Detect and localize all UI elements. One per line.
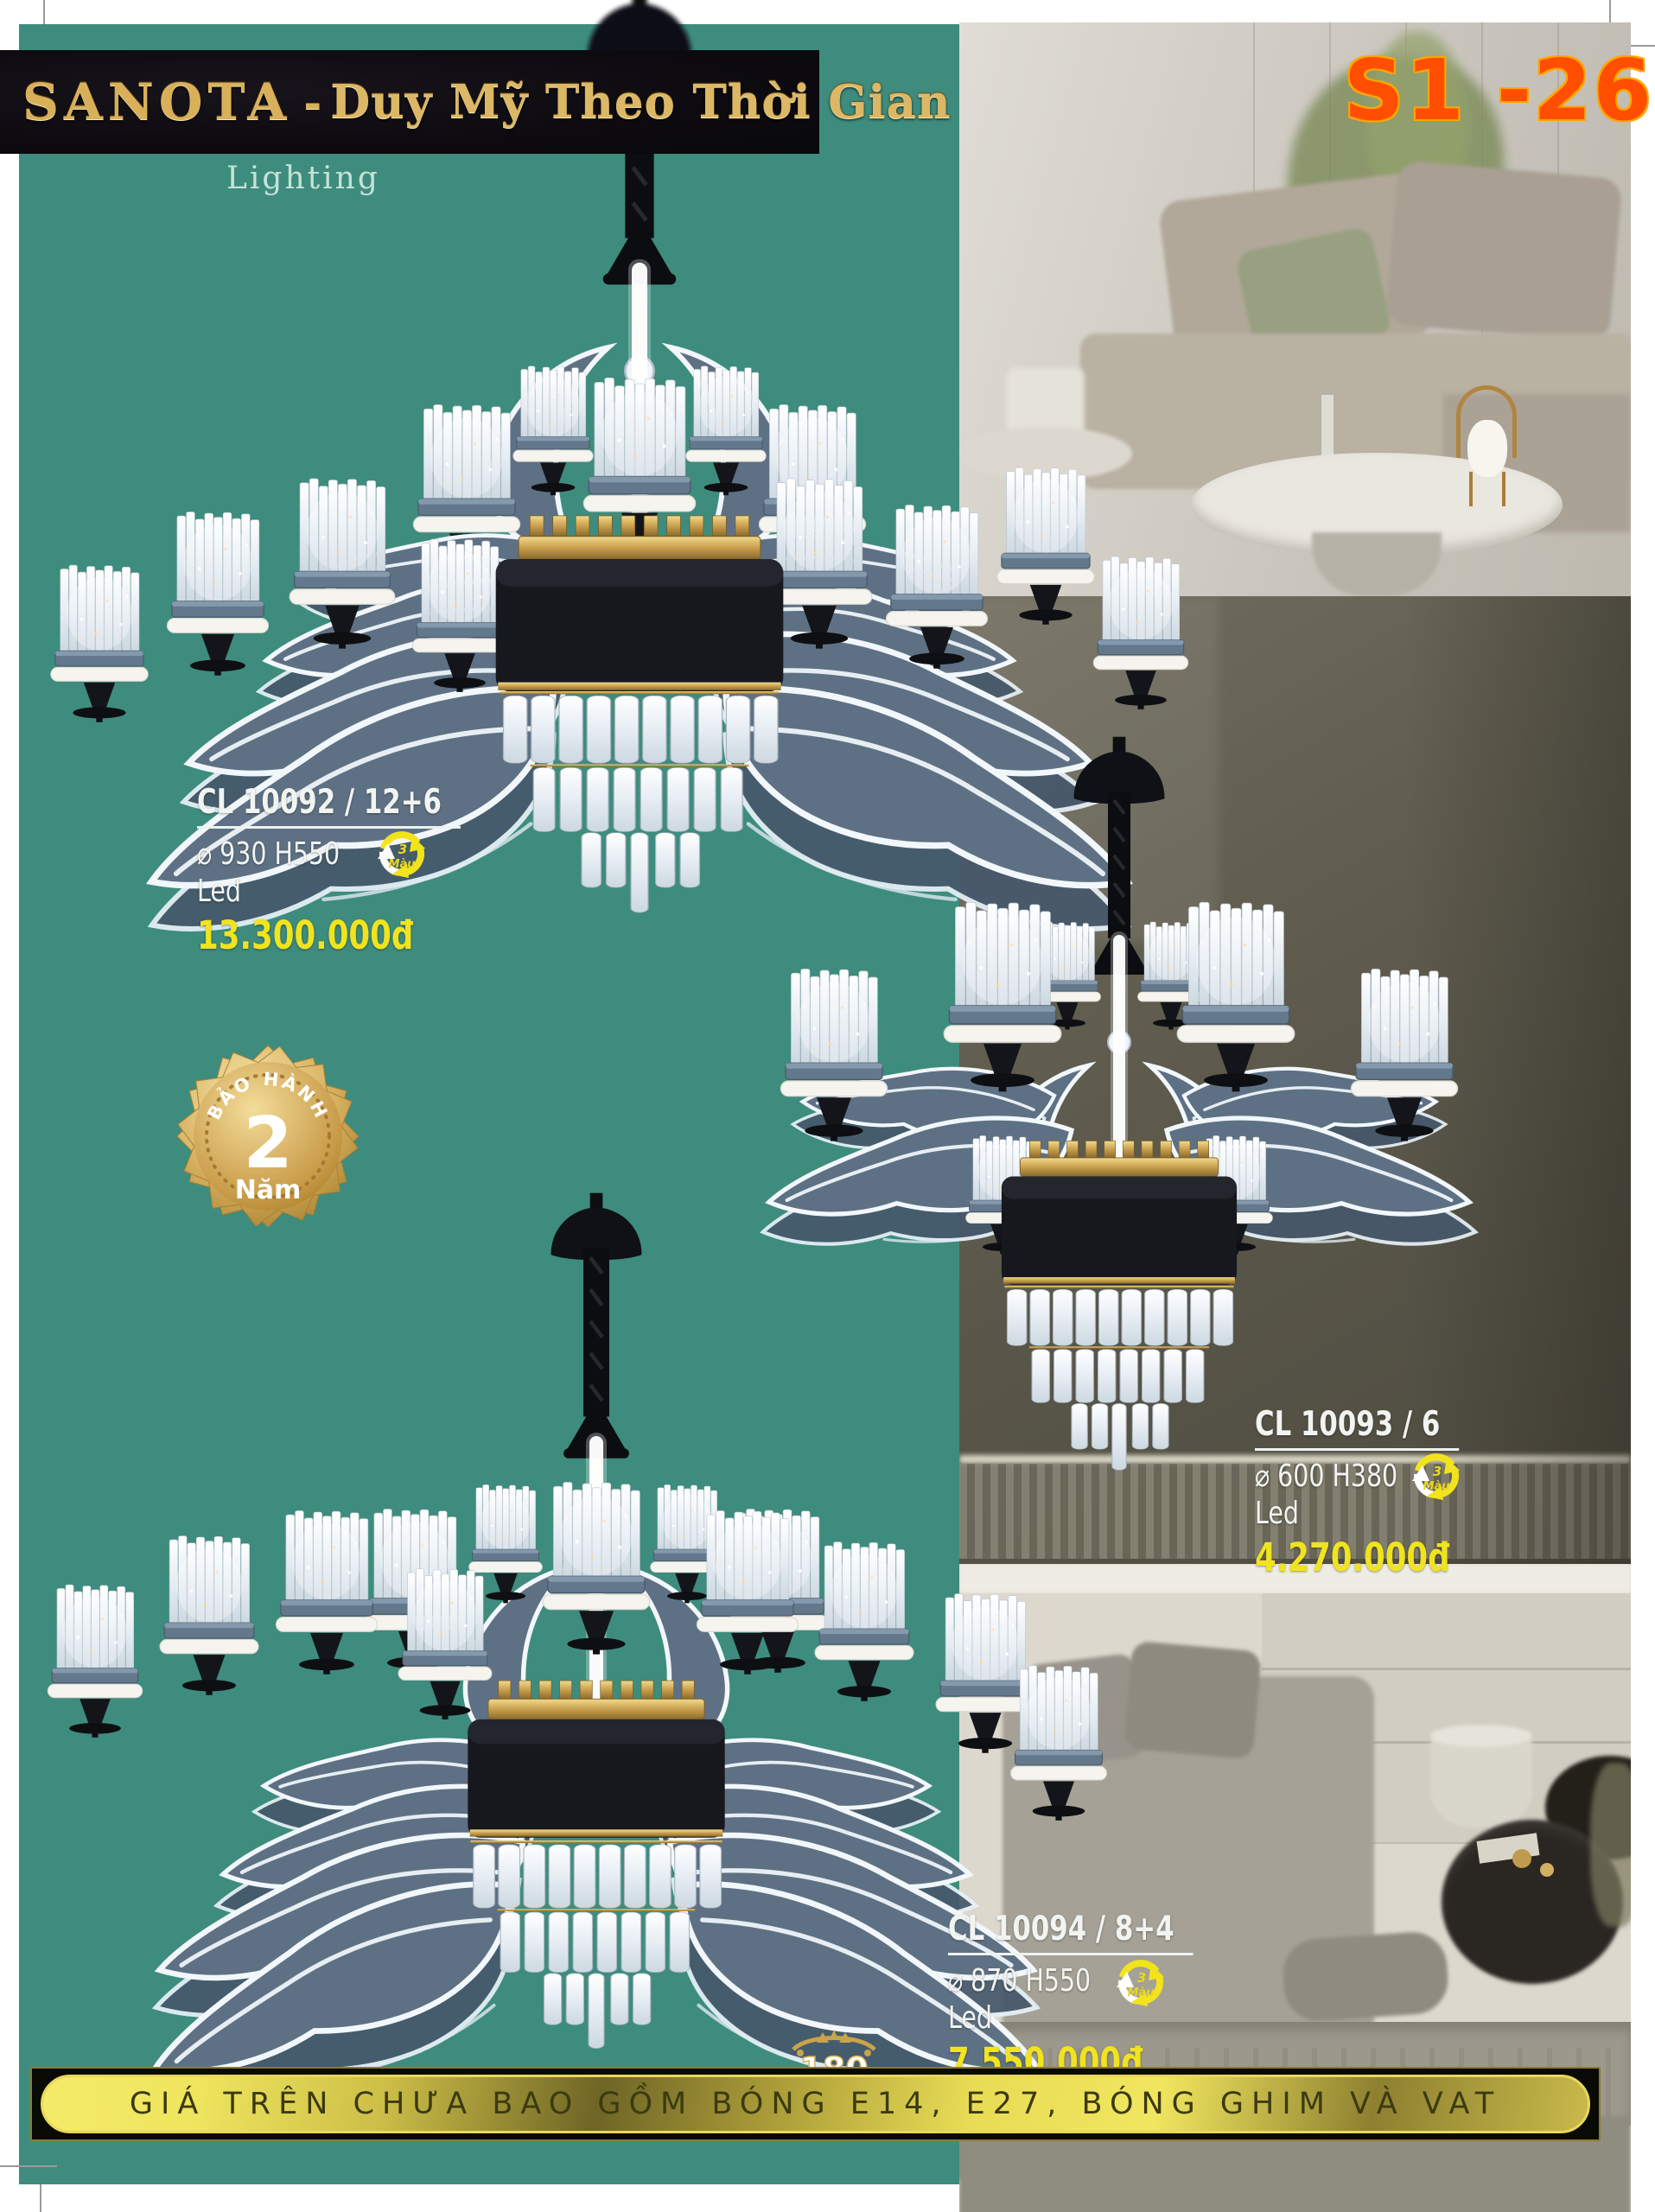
footer-banner-pill: GIÁ TRÊN CHƯA BAO GỒM BÓNG E14, E27, BÓN… — [41, 2075, 1590, 2133]
product-info-cl10092: CL 10092 / 12+6 ⌀ 930 H550 Led 13.300.00… — [197, 783, 531, 958]
table-lantern-shade — [1467, 420, 1507, 477]
brand-banner: SANOTA - Duy Mỹ Theo Thời Gian — [0, 50, 819, 154]
page-code: S1 -26 — [1290, 48, 1653, 132]
partial-medal-badge: 180 — [778, 2027, 890, 2067]
color-count-label: 3 — [1137, 1970, 1146, 1986]
product-info-cl10093: CL 10093 / 6 ⌀ 600 H380 Led 4.270.000đ — [1255, 1405, 1513, 1580]
product-code: CL 10092 / 12+6 — [197, 783, 461, 829]
scan-artifact-line — [1631, 45, 1655, 47]
sofa-cushion — [1384, 160, 1623, 343]
plant-image — [1590, 1763, 1631, 1927]
brand-sub-logo: Lighting — [226, 161, 380, 196]
product-info-cl10094: CL 10094 / 8+4 ⌀ 870 H550 Led 7.550.000đ — [948, 1910, 1258, 2085]
brand-separator: - — [303, 77, 321, 128]
brand-name: SANOTA — [22, 73, 291, 131]
badge-years-unit: Năm — [235, 1175, 302, 1205]
scan-artifact-line — [0, 2165, 57, 2167]
color-unit-label: Màu — [389, 858, 416, 871]
footer-banner: GIÁ TRÊN CHƯA BAO GỒM BÓNG E14, E27, BÓN… — [30, 2067, 1601, 2141]
product-price: 4.270.000đ — [1255, 1535, 1459, 1580]
color-unit-label: Màu — [1128, 1986, 1155, 1999]
scan-artifact-line — [43, 0, 45, 24]
product-price: 13.300.000đ — [197, 912, 461, 958]
product-code: CL 10094 / 8+4 — [948, 1910, 1194, 1955]
medal-number: 180 — [799, 2050, 868, 2067]
catalog-page: SANOTA - Duy Mỹ Theo Thời Gian Lighting … — [0, 0, 1655, 2212]
gold-decor — [1540, 1863, 1554, 1877]
color-count-label: 3 — [1433, 1464, 1442, 1479]
scan-artifact-line — [40, 2184, 41, 2212]
table-lantern-legs — [1469, 472, 1505, 506]
scan-artifact-line — [1609, 0, 1611, 22]
sofa-pillow — [1281, 1929, 1450, 2023]
color-change-icon: 3 Màu — [374, 825, 430, 882]
coffee-table-base — [1312, 532, 1442, 596]
brand-tagline: Duy Mỹ Theo Thời Gian — [330, 75, 951, 129]
gold-decor — [1512, 1849, 1531, 1868]
color-unit-label: Màu — [1423, 1480, 1450, 1493]
color-change-icon: 3 Màu — [1409, 1447, 1464, 1504]
product-code: CL 10093 / 6 — [1255, 1405, 1459, 1451]
color-change-icon: 3 Màu — [1113, 1954, 1168, 2011]
color-count-label: 3 — [398, 842, 407, 857]
badge-years-number: 2 — [243, 1103, 292, 1185]
wall-groove — [1262, 1668, 1631, 1670]
cylinder-side-table-top — [1430, 1725, 1532, 1747]
footer-banner-text: GIÁ TRÊN CHƯA BAO GỒM BÓNG E14, E27, BÓN… — [130, 2087, 1501, 2121]
warranty-badge: BẢO HÀNH 2 Năm — [173, 1041, 363, 1231]
